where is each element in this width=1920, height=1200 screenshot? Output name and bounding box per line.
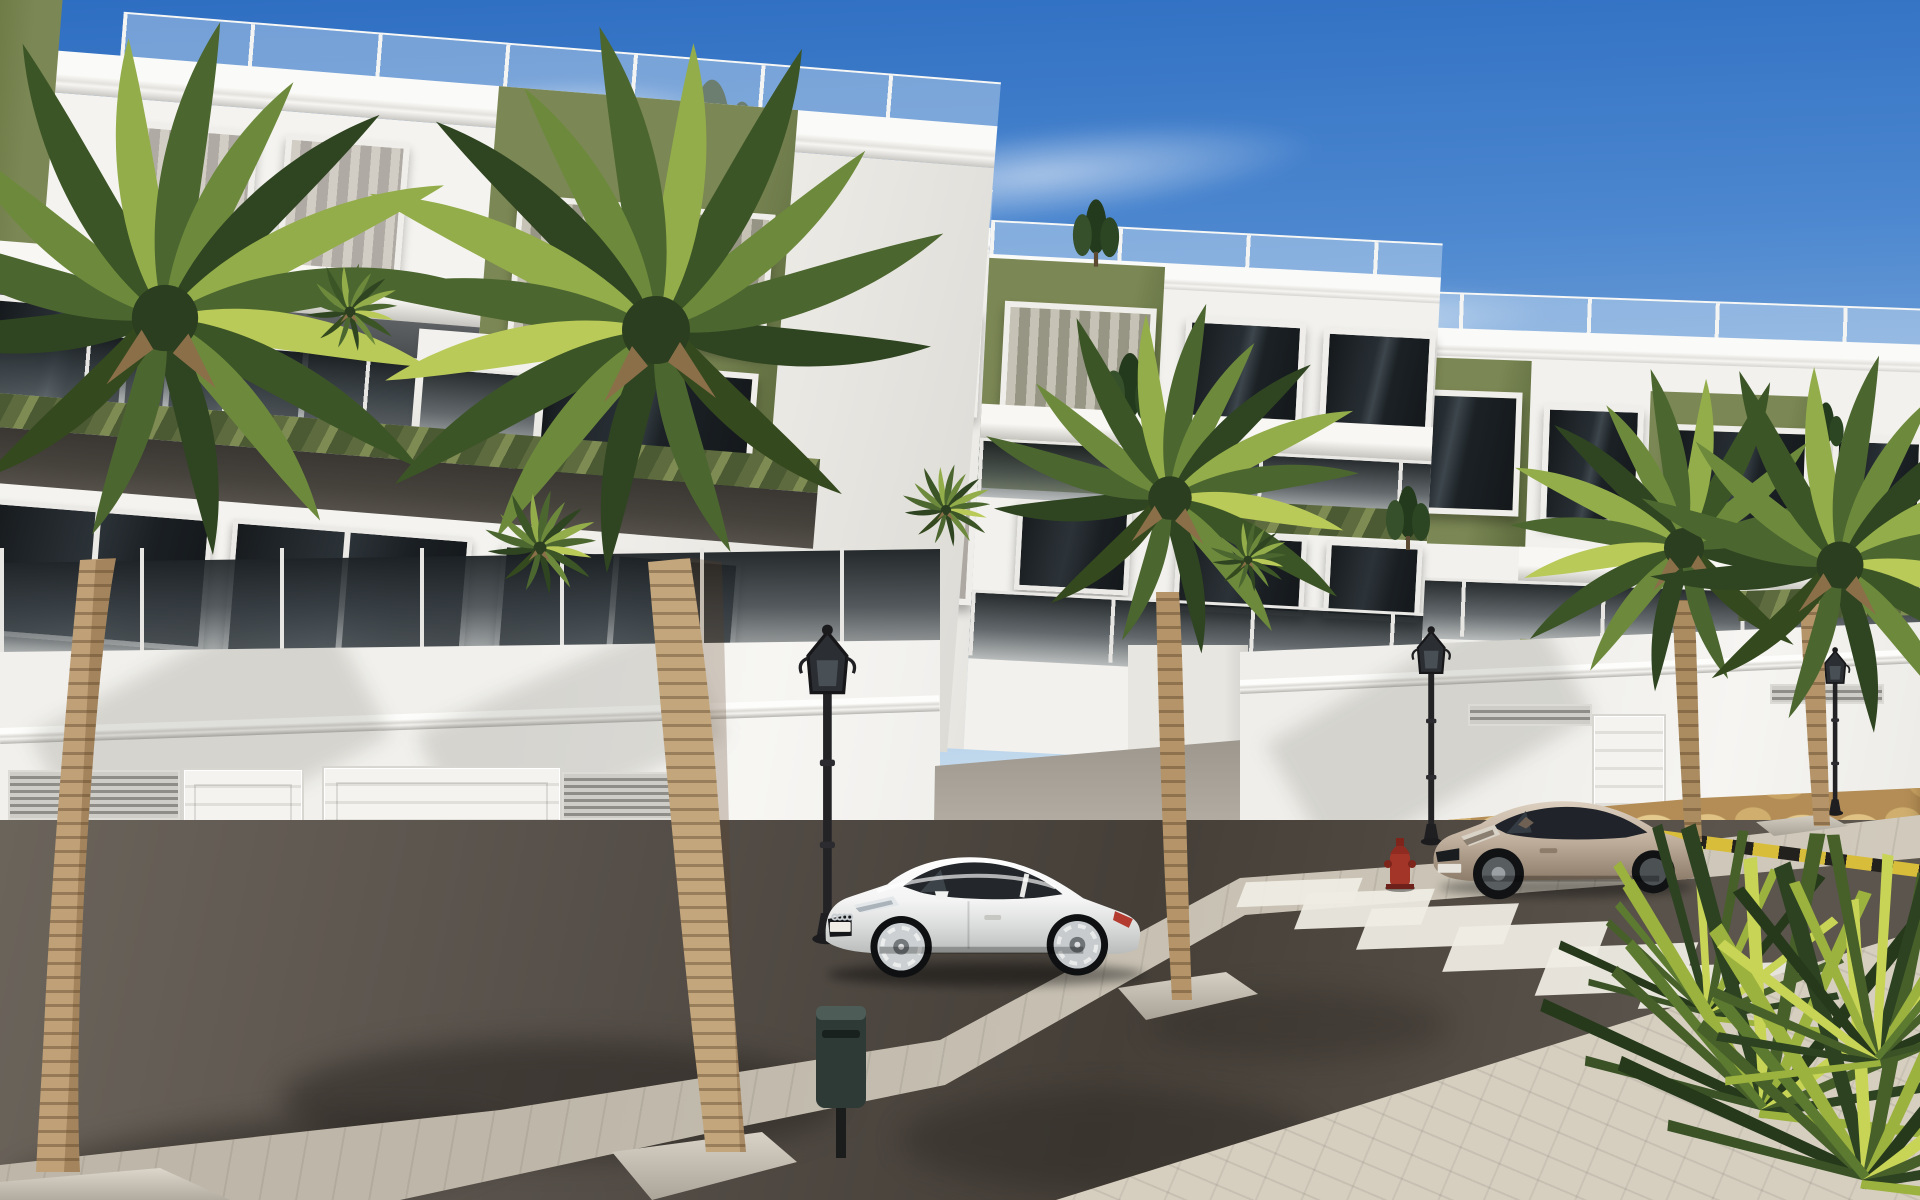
balcony-plant [903,464,992,546]
street-render-scene [0,0,1920,1200]
palm-tree-trunk [1672,600,1702,842]
balcony-plant [485,490,598,594]
palm-tree-trunk [36,558,116,1172]
palm-tree-trunk [1156,592,1192,1000]
palm-tree-crown [351,25,946,574]
palm-tree-trunk [648,558,746,1152]
foreground-palm-bush [1537,819,1920,1200]
